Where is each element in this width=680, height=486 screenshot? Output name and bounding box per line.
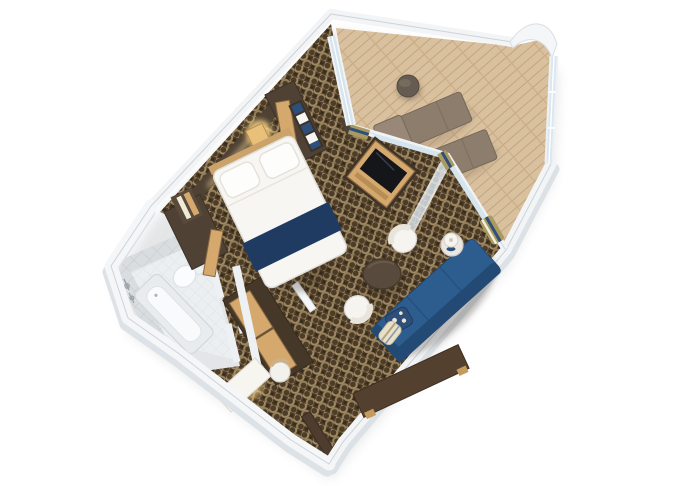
side-table-lamp bbox=[441, 233, 463, 256]
coffee-table bbox=[363, 259, 401, 289]
floor-plan-svg bbox=[0, 0, 680, 486]
vanity-stool bbox=[270, 360, 290, 382]
balcony-railing bbox=[548, 56, 556, 163]
floor-plan-image bbox=[0, 0, 680, 486]
